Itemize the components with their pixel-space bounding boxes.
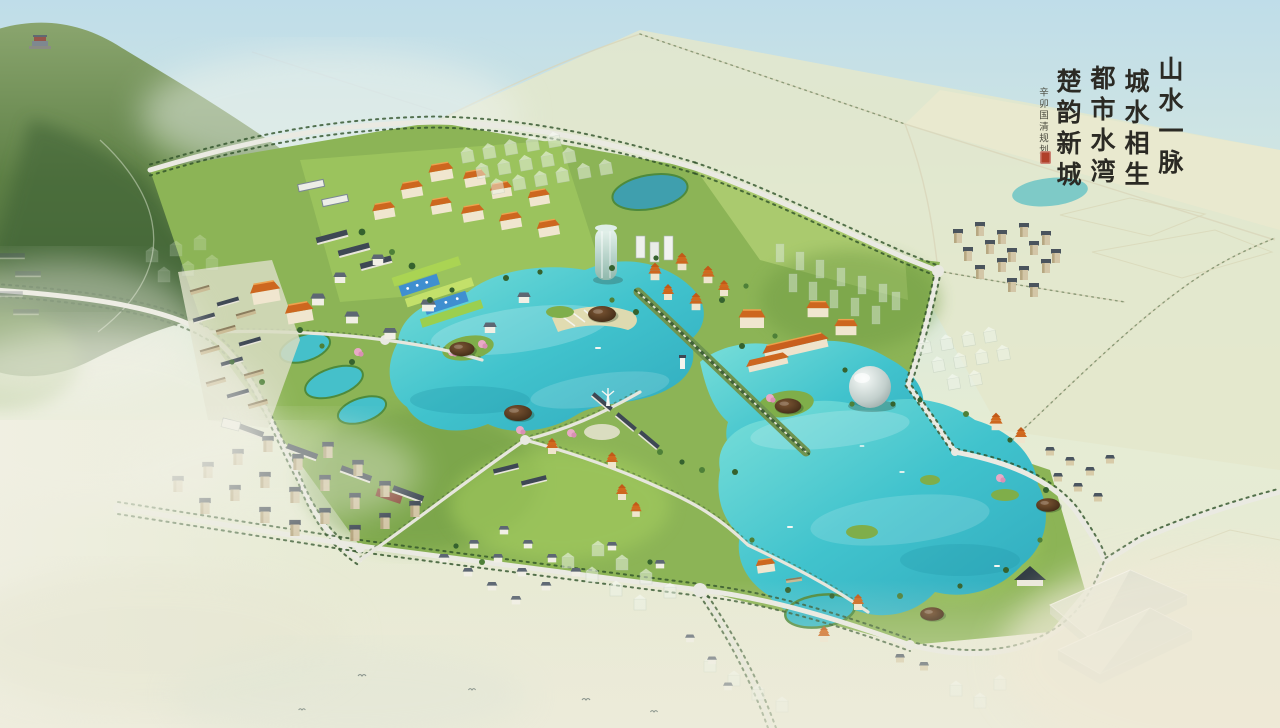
calligraphy-title: 山水一脉 城水相生 都市水湾 楚韵新城 (1050, 56, 1186, 192)
calligraphy-column-3: 都市水湾 (1084, 65, 1118, 192)
calligraphy-column-4: 楚韵新城 (1050, 68, 1084, 192)
calligraphy-column-1: 山水一脉 (1152, 56, 1186, 192)
masterplan-rendering: 山水一脉 城水相生 都市水湾 楚韵新城 辛卯国清规划 (0, 0, 1280, 728)
artist-signature: 辛卯国清规划 (1035, 87, 1049, 156)
calligraphy-column-2: 城水相生 (1118, 68, 1152, 192)
artist-seal-icon (1040, 151, 1051, 164)
causeway-tower (680, 358, 685, 369)
lakeside-plaza (584, 424, 620, 440)
